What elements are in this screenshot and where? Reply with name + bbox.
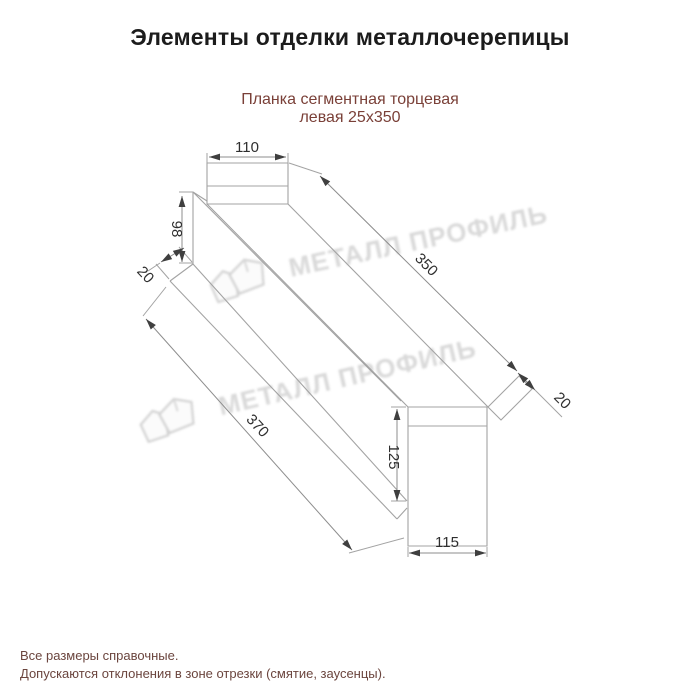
product-subtitle-line2: левая 25х350 <box>0 109 700 127</box>
product-subtitle-line1: Планка сегментная торцевая <box>0 91 700 109</box>
dimension-lines <box>146 157 535 553</box>
watermark: МЕТАЛЛ ПРОФИЛЬ <box>200 190 552 310</box>
dimension-labels: 110 98 20 350 370 20 125 115 <box>133 139 574 551</box>
footnotes: Все размеры справочные. Допускаются откл… <box>20 647 386 683</box>
product-outline <box>170 163 532 546</box>
extension-lines <box>143 153 562 557</box>
product-subtitle: Планка сегментная торцевая левая 25х350 <box>0 91 700 127</box>
dim-20-right-label: 20 <box>550 389 574 413</box>
dim-370-label: 370 <box>243 411 273 441</box>
footnote-line1: Все размеры справочные. <box>20 647 386 665</box>
dim-125-label: 125 <box>385 444 402 469</box>
metall-profil-logo-icon <box>130 385 217 449</box>
watermark-text: МЕТАЛЛ ПРОФИЛЬ <box>286 198 550 283</box>
dim-20-left-label: 20 <box>133 263 157 287</box>
watermark-text: МЕТАЛЛ ПРОФИЛЬ <box>215 332 479 422</box>
technical-drawing-page: Элементы отделки металлочерепицы Планка … <box>0 0 700 700</box>
dim-110-label: 110 <box>235 139 259 156</box>
dim-115-label: 115 <box>435 534 459 551</box>
metall-profil-logo-icon <box>200 246 286 309</box>
page-title: Элементы отделки металлочерепицы <box>0 24 700 51</box>
footnote-line2: Допускаются отклонения в зоне отрезки (с… <box>20 665 386 683</box>
dim-350-label: 350 <box>411 250 441 280</box>
watermark: МЕТАЛЛ ПРОФИЛЬ <box>130 324 482 449</box>
dim-98-label: 98 <box>168 221 185 238</box>
